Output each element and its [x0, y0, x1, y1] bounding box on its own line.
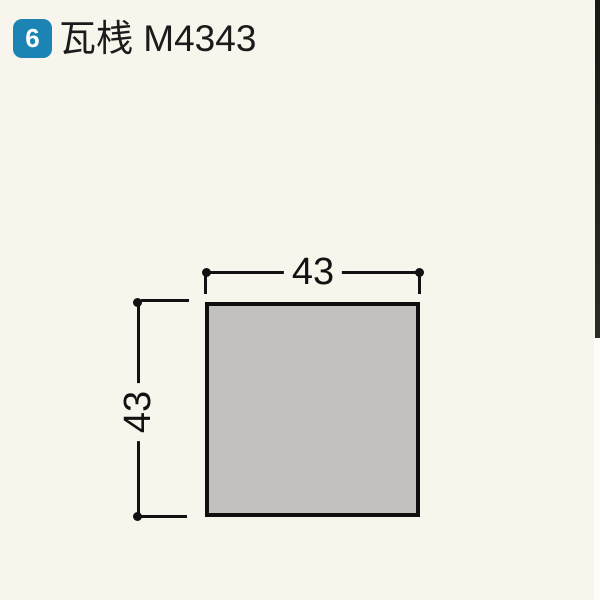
- cross-section-square: [205, 302, 420, 517]
- dimension-tick: [204, 274, 207, 294]
- item-number-badge: 6: [13, 19, 52, 58]
- page-title: 瓦桟 M4343: [59, 17, 256, 60]
- page-header: 6 瓦桟 M4343: [0, 0, 600, 70]
- page-edge-highlight: [594, 338, 600, 600]
- width-dimension-label: 43: [284, 252, 342, 292]
- dimension-tick: [418, 274, 421, 294]
- dimension-extension-line: [141, 299, 189, 302]
- page-edge-shadow: [595, 0, 600, 338]
- dimension-extension-line: [141, 515, 187, 518]
- height-dimension-label: 43: [118, 383, 158, 441]
